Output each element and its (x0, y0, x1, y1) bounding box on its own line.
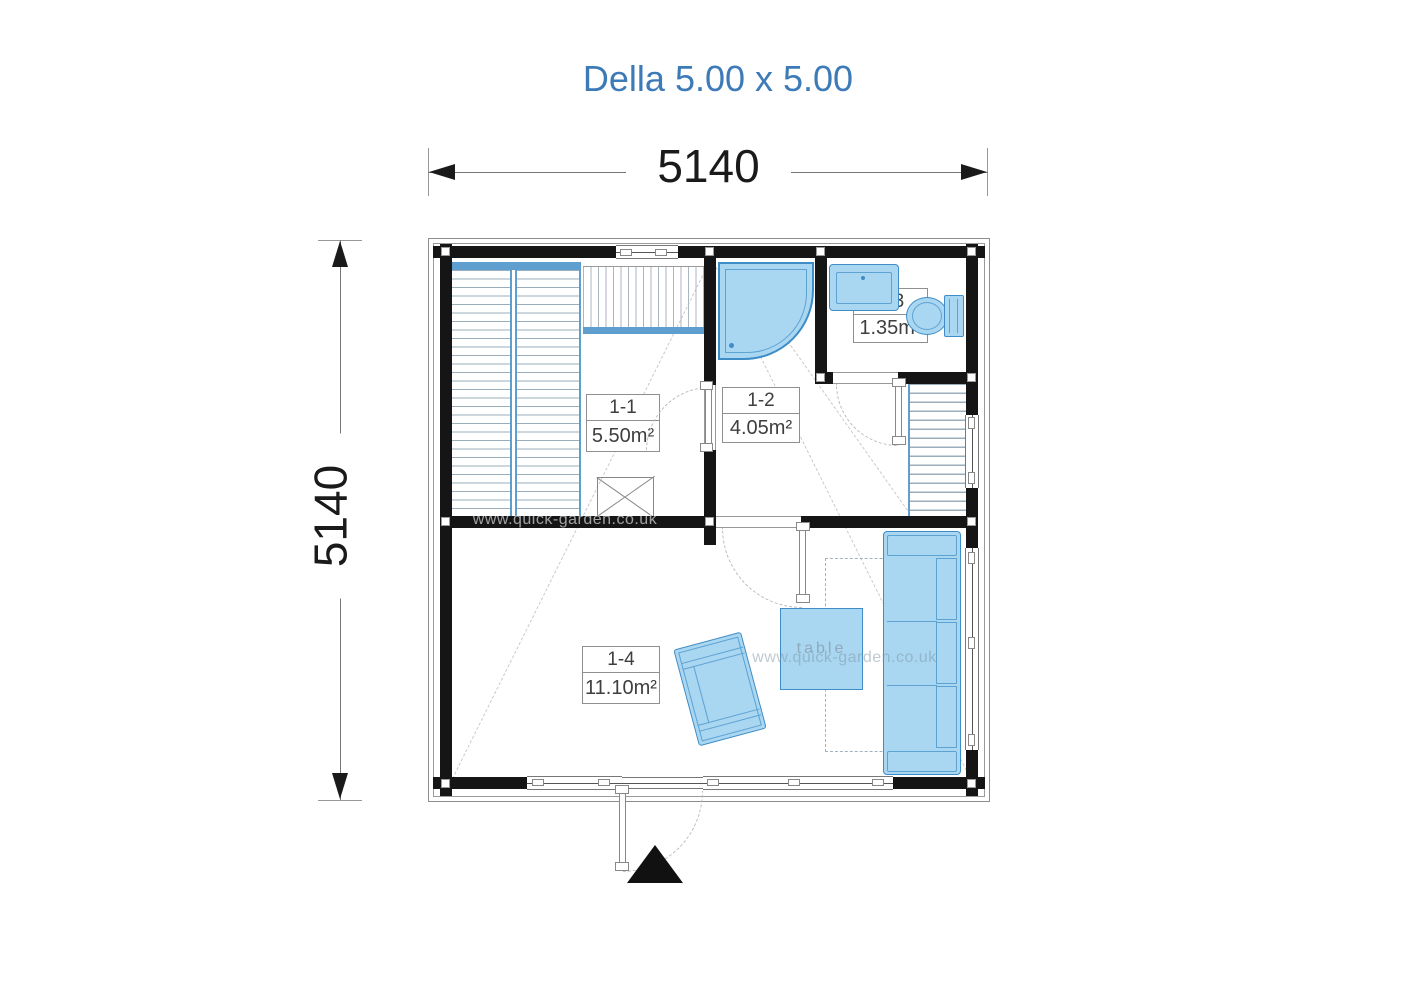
window-frame-tab (968, 472, 975, 484)
window-frame-tab (968, 552, 975, 564)
bathroom-door-leaf (895, 384, 902, 443)
wall-room2-room3 (815, 258, 827, 384)
wall-joint (967, 247, 976, 256)
entrance-door-leaf (619, 791, 626, 869)
wall-joint (967, 373, 976, 382)
loft-ladder (908, 384, 966, 516)
wall-room1-room2-lower (704, 450, 716, 545)
floor-plan-page: Della 5.00 x 5.00 5140 5140 (0, 0, 1415, 1000)
door-hinge-tab (700, 381, 713, 390)
sofa-seat-divider (887, 621, 937, 622)
sofa-seat-divider (887, 685, 937, 686)
window-frame-tab (968, 417, 975, 429)
toilet-seat-line (912, 302, 942, 330)
toilet-bowl (906, 297, 948, 335)
left-dimension-extension-bottom (318, 800, 362, 801)
toilet-cistern (944, 295, 964, 337)
bedroom-door-leaf (705, 386, 712, 450)
window-frame-tab (655, 249, 667, 256)
wall-joint (816, 373, 825, 382)
sofa-armrest-bottom (887, 751, 957, 772)
washbasin-tap (861, 276, 865, 280)
room-id: 1-1 (587, 395, 659, 421)
shower-drain (729, 343, 734, 348)
staircase-center-rail (510, 270, 517, 516)
doorway-line (833, 372, 898, 373)
wall-joint (816, 247, 825, 256)
left-dimension-arrow-up-icon (332, 241, 348, 267)
wall-joint (967, 517, 976, 526)
sofa-armrest-top (887, 535, 957, 556)
wall-joint (441, 517, 450, 526)
window-frame-tab (968, 637, 975, 649)
doorway-line (716, 516, 801, 517)
window-frame-tab (968, 734, 975, 746)
left-dimension-value: 5140 (305, 434, 357, 599)
door-hinge-tab (892, 436, 906, 445)
window-frame-tab (620, 249, 632, 256)
window-frame-tab (788, 779, 800, 786)
top-dimension-arrow-left-icon (429, 164, 455, 180)
door-hinge-tab (615, 785, 629, 794)
room-id: 1-4 (583, 647, 659, 673)
room-id: 1-2 (723, 388, 799, 414)
wall-joint (441, 247, 450, 256)
door-hinge-tab (892, 378, 906, 387)
wall-joint (967, 779, 976, 788)
doorway-line (833, 383, 898, 384)
window-frame-tab (598, 779, 610, 786)
room-area: 4.05m² (723, 414, 799, 442)
window-right-lower (965, 548, 979, 750)
loft-hatch-edge (583, 327, 704, 334)
sofa-back-cushion (936, 558, 957, 620)
wall-room3-bottom-right (898, 372, 966, 384)
loft-hatch (583, 266, 704, 333)
wall-joint (705, 517, 714, 526)
door-hinge-tab (796, 522, 810, 531)
entrance-threshold (622, 777, 703, 789)
watermark: www.quick-garden.co.uk (450, 511, 680, 529)
toilet-cistern-line (949, 299, 958, 333)
hall-door-leaf (799, 528, 806, 601)
page-title: Della 5.00 x 5.00 (418, 58, 1018, 100)
window-frame-tab (532, 779, 544, 786)
window-frame-tab (872, 779, 884, 786)
left-dimension-arrow-down-icon (332, 773, 348, 799)
top-dimension-arrow-right-icon (961, 164, 987, 180)
door-hinge-tab (615, 862, 629, 871)
room-area: 11.10m² (583, 673, 659, 703)
window-frame-tab (707, 779, 719, 786)
wall-room1-room2-upper (704, 258, 716, 385)
entrance-arrow (627, 845, 683, 883)
watermark: www.quick-garden.co.uk (737, 649, 952, 667)
staircase-top-rail (448, 262, 581, 270)
wall-joint (705, 247, 714, 256)
top-dimension-value: 5140 (626, 140, 791, 192)
washbasin (829, 264, 899, 311)
sofa-back-cushion (936, 686, 957, 748)
room-label-1-2: 1-2 4.05m² (722, 387, 800, 443)
staircase-flight-right (517, 270, 581, 516)
doorway-line (715, 385, 716, 450)
wall-middle-right (801, 516, 966, 528)
door-hinge-tab (796, 594, 810, 603)
staircase-flight-left (448, 270, 510, 516)
doorway-line (716, 527, 801, 528)
room-label-1-4: 1-4 11.10m² (582, 646, 660, 704)
staircase (448, 262, 581, 516)
wall-joint (441, 779, 450, 788)
door-hinge-tab (700, 443, 713, 452)
